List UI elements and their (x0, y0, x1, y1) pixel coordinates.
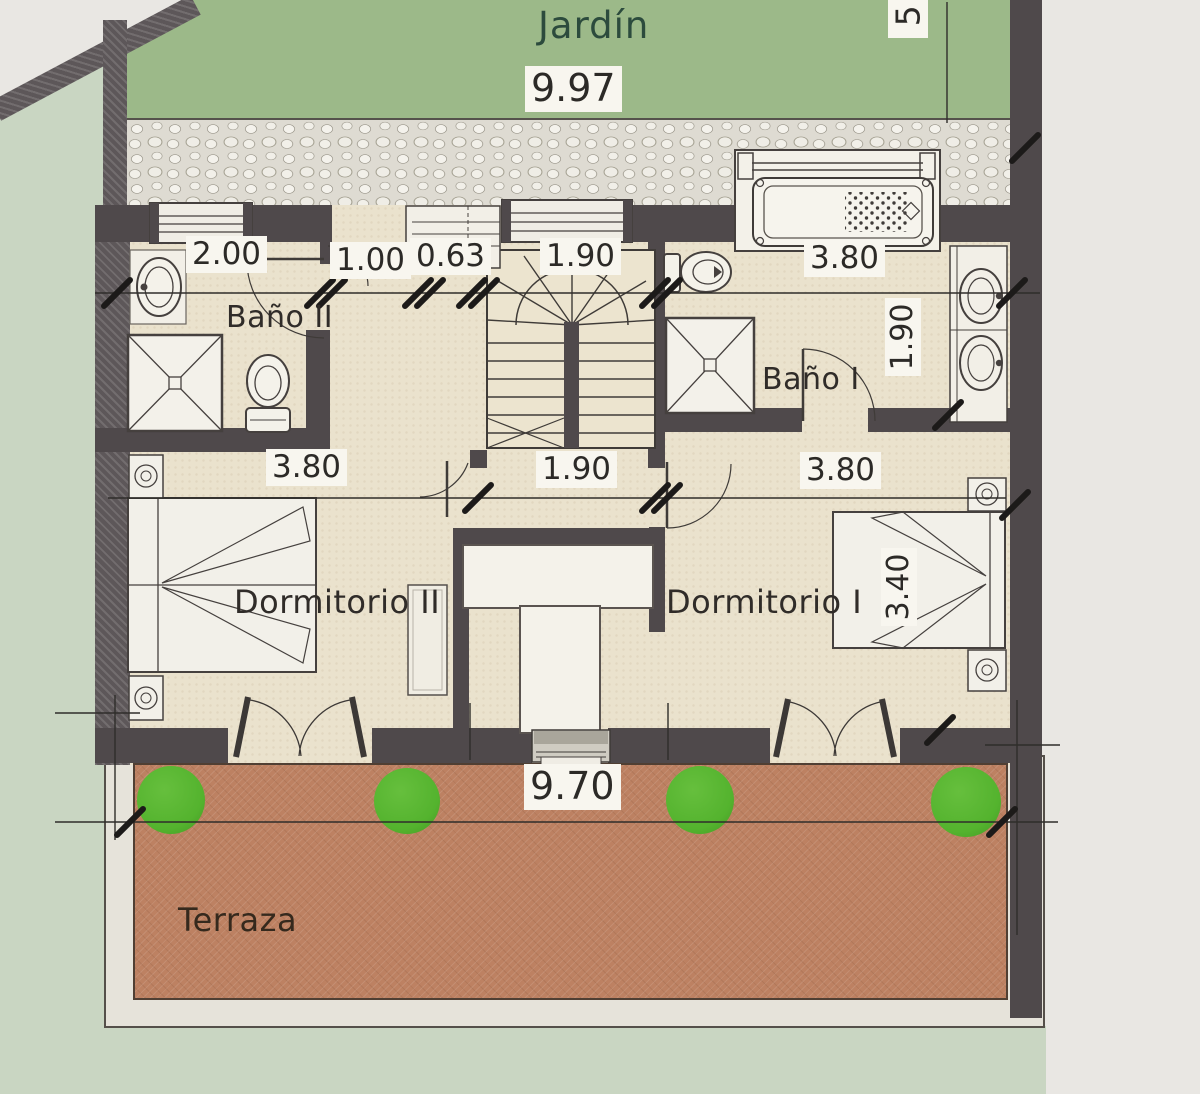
bush-icon (374, 768, 440, 834)
room-label-bath1: Baño I (762, 362, 860, 397)
wall-terrace (372, 728, 532, 763)
wall-terrace (95, 728, 228, 763)
room-label-bedroom1: Dormitorio I (666, 583, 862, 621)
bush-icon (137, 766, 205, 834)
wall-void-north (453, 528, 665, 546)
wall-bath1-south (868, 408, 1010, 432)
dim-bedroom1-depth-wrap: 3.40 (882, 550, 916, 624)
room-label-terrace: Terraza (178, 901, 297, 939)
wall-terrace (900, 728, 1042, 763)
dim-hall-width: 1.90 (536, 451, 617, 488)
dim-bedroom1-width: 3.80 (800, 452, 881, 489)
wall-left (95, 205, 130, 765)
room-label-bath2: Baño II (226, 300, 333, 335)
dim-bedroom2-width: 3.80 (266, 449, 347, 486)
dim-bath2-window: 2.00 (186, 236, 267, 273)
dim-bath1-width: 3.80 (804, 240, 885, 277)
bush-icon (666, 766, 734, 834)
dim-right-partial-text: 5 (888, 6, 928, 27)
dim-terrace-width: 9.70 (524, 764, 621, 810)
dim-right-partial: 5 (888, 0, 928, 38)
wall-stair-east (648, 228, 665, 468)
garden-label: Jardín (538, 4, 649, 47)
floor-plan: Jardín 9.97 5 2.00 1.00 0.63 1.90 3.80 1… (0, 0, 1200, 1094)
wall-bath1-south (655, 408, 802, 432)
wall-top (95, 205, 152, 242)
dim-bath1-depth-wrap: 1.90 (886, 300, 920, 374)
lawn-bottom (0, 1026, 1046, 1094)
dim-closet: 0.63 (410, 238, 491, 275)
room-label-bedroom2: Dormitorio II (234, 583, 440, 621)
wall-bedroom1-west (649, 527, 665, 632)
wall-right (1010, 0, 1042, 1018)
wall-top (925, 205, 1012, 242)
wall-hall-jamb (470, 450, 487, 468)
gravel-strip (127, 118, 1010, 205)
wall-bedroom2-east (453, 546, 469, 736)
dim-garden-width: 9.97 (525, 66, 622, 112)
bush-icon (931, 767, 1001, 837)
lawn-left (0, 0, 105, 1094)
dim-stair-window: 1.90 (540, 238, 621, 275)
dim-entry-opening: 1.00 (330, 242, 411, 279)
wall-bath2-east (306, 330, 330, 452)
wall-top-left (103, 20, 127, 205)
wall-terrace (608, 728, 770, 763)
dim-bedroom1-depth: 3.40 (881, 548, 917, 627)
dim-bath1-depth: 1.90 (885, 298, 921, 377)
